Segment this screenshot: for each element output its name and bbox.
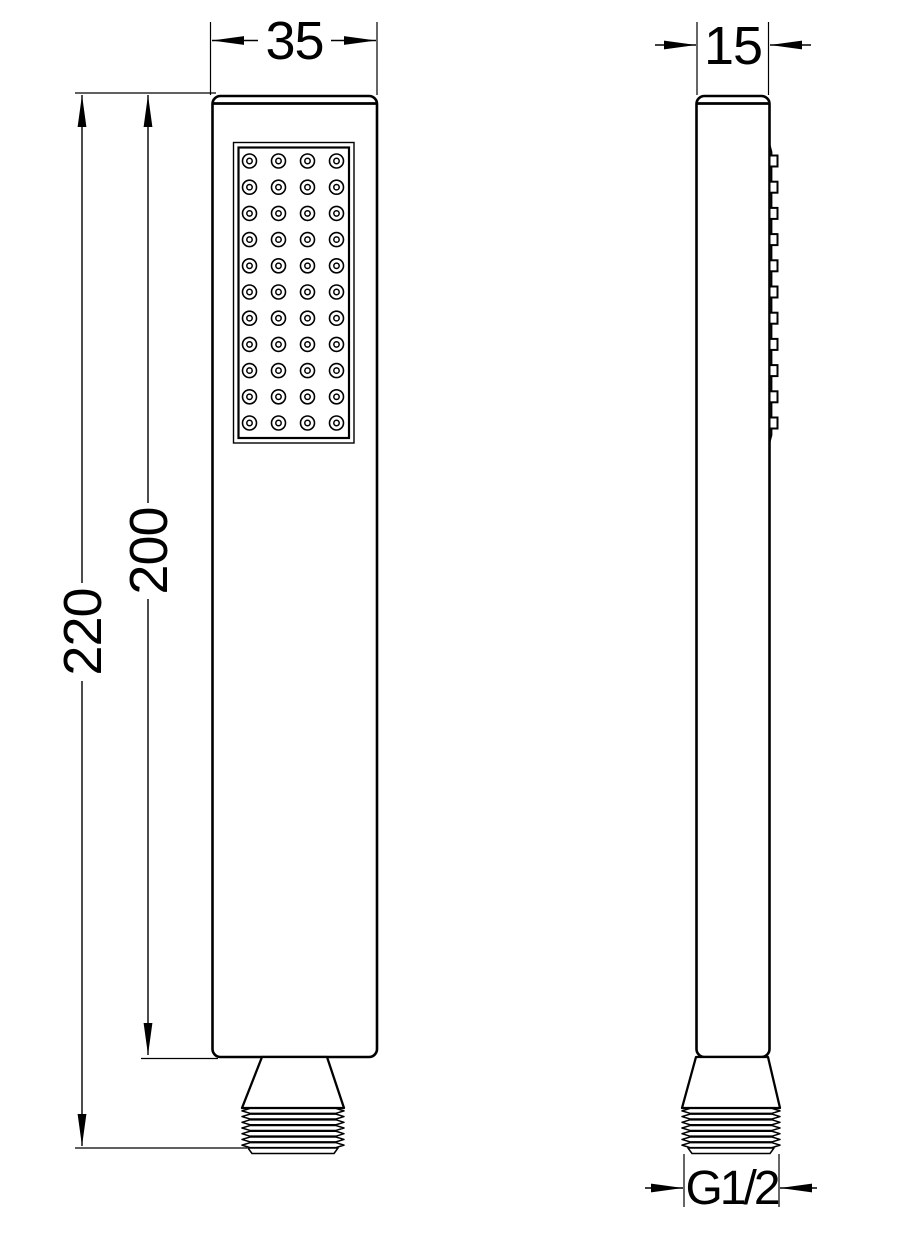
side-cone — [682, 1057, 780, 1108]
side-view: 15 G1/2 — [645, 16, 817, 1215]
front-cone — [242, 1057, 344, 1108]
front-dim-overall-height: 220 — [53, 95, 113, 1146]
side-thread — [682, 1108, 780, 1153]
side-dim-thread: G1/2 — [645, 1162, 817, 1215]
front-thread — [242, 1108, 344, 1153]
front-view: 35 220 200 — [53, 11, 377, 1154]
front-overall-height-value: 220 — [53, 588, 113, 675]
front-dim-width: 35 — [212, 11, 376, 71]
technical-drawing: 35 220 200 — [0, 0, 898, 1255]
side-body — [697, 96, 770, 1057]
front-dim-body-height: 200 — [119, 95, 179, 1055]
side-dim-depth: 15 — [655, 16, 811, 76]
front-width-value: 35 — [265, 11, 323, 71]
drawing-canvas: 35 220 200 — [0, 0, 898, 1255]
front-body-height-value: 200 — [119, 507, 179, 594]
side-thread-value: G1/2 — [685, 1162, 778, 1215]
side-depth-value: 15 — [704, 16, 762, 76]
